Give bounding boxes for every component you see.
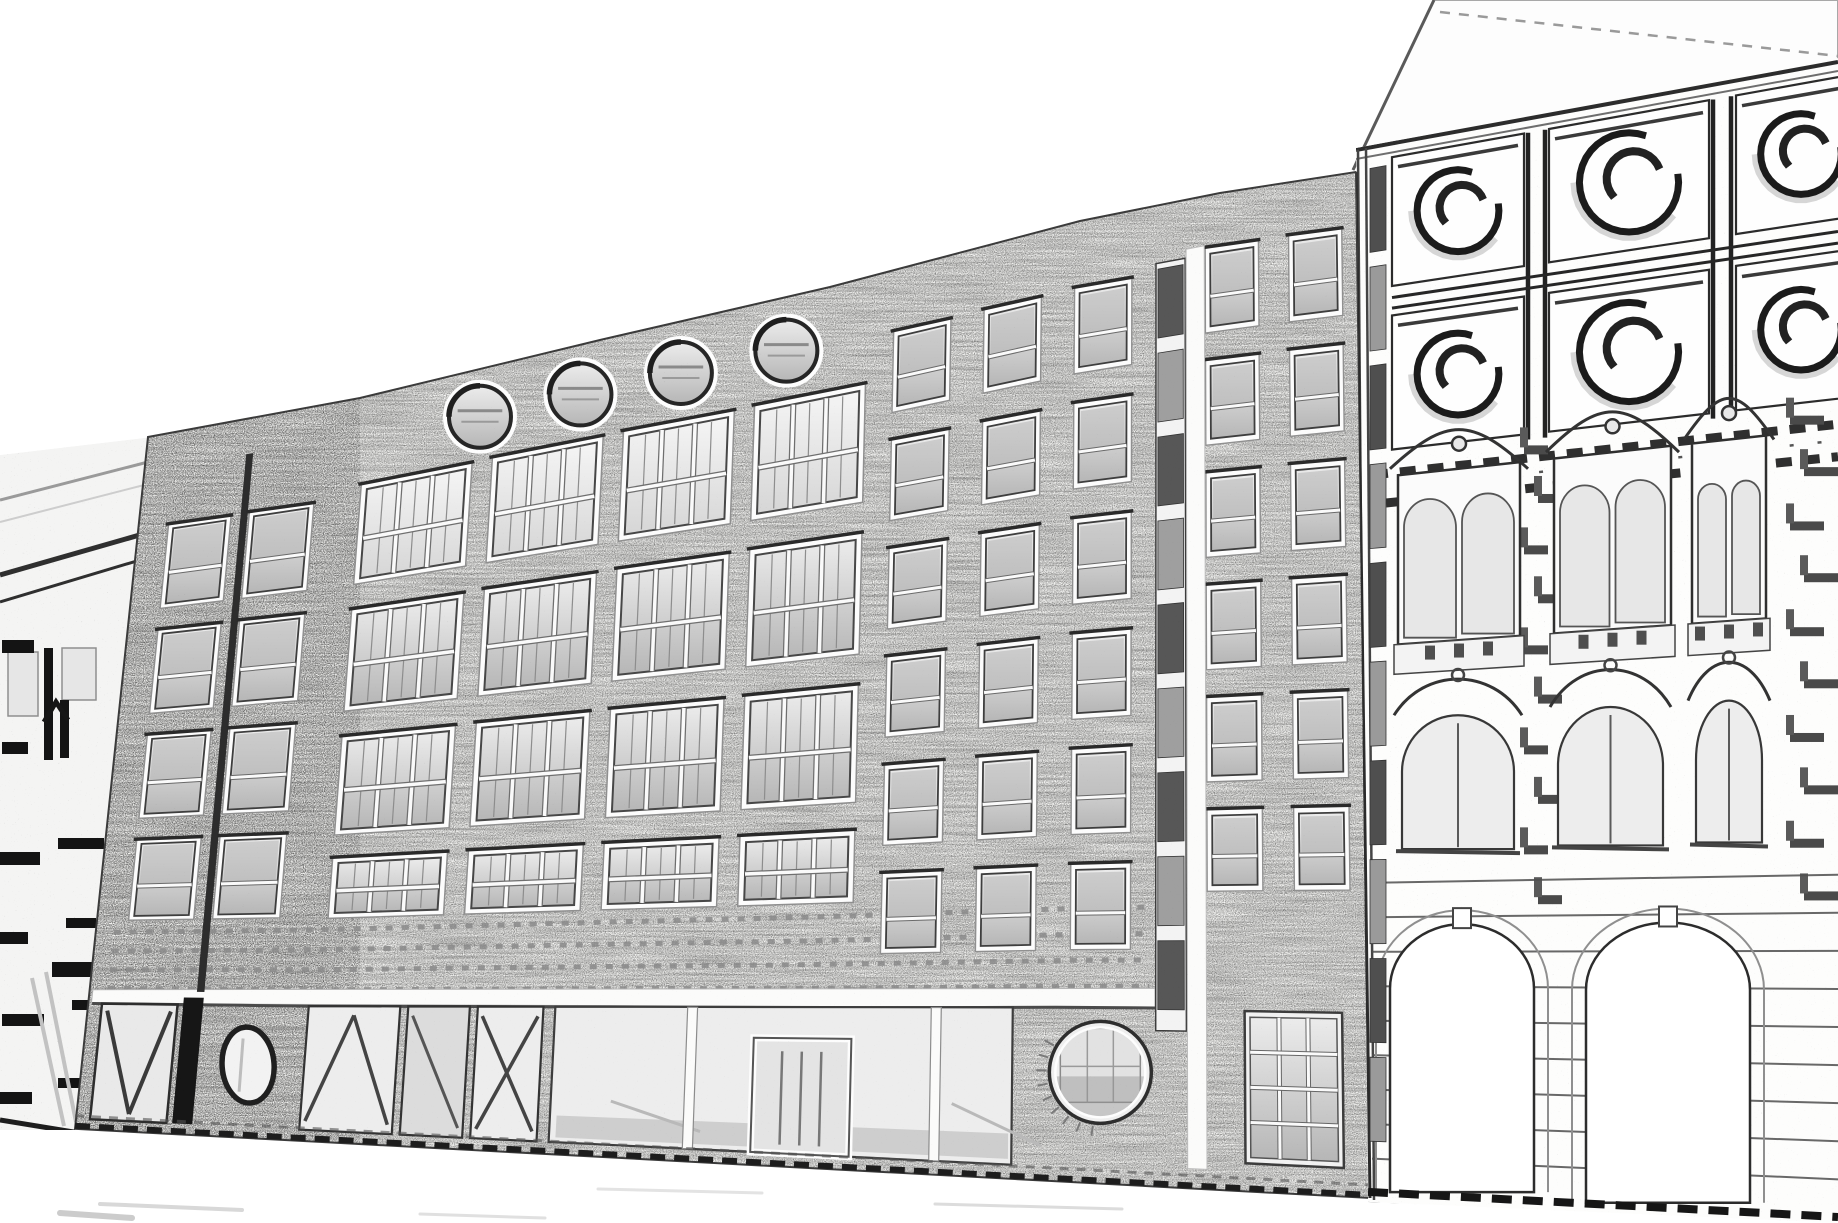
left-building-mark (2, 1014, 44, 1026)
aedicule-light (1732, 481, 1760, 615)
sill-bracket (1425, 646, 1435, 660)
sill-bracket (1637, 631, 1647, 645)
circle-ornament-panel (1549, 270, 1709, 432)
left-building-window (8, 652, 38, 716)
rusticated-block (1804, 573, 1838, 582)
rusticated-block-vertical (1534, 677, 1542, 697)
ornate-edge-strip-pane (1370, 1057, 1386, 1142)
rusticated-block-vertical (1800, 661, 1808, 681)
rusticated-block-vertical (1800, 449, 1808, 469)
sill-bracket (1753, 622, 1763, 636)
left-building-mark (44, 648, 53, 760)
rusticated-block (1790, 627, 1824, 636)
rusticated-block-vertical (1786, 398, 1794, 418)
rusticated-block (1790, 521, 1824, 530)
aedicule-light (1462, 493, 1514, 633)
rusticated-block (1790, 733, 1824, 742)
rusticated-block-vertical (1534, 777, 1542, 797)
sill-bracket (1608, 633, 1618, 647)
ornate-edge-strip-pane (1370, 166, 1386, 253)
rusticated-block (1804, 891, 1838, 900)
rusticated-block-vertical (1800, 767, 1808, 787)
ground (60, 1189, 1122, 1218)
aedicule-light (1698, 484, 1726, 617)
rusticated-block-vertical (1800, 555, 1808, 575)
left-building-mark (66, 918, 96, 928)
left-building-mark (2, 742, 28, 754)
arched-sill (1690, 845, 1768, 847)
left-building-mark (58, 838, 104, 849)
left-building-window (62, 648, 96, 700)
rusticated-block (1804, 785, 1838, 794)
circle-ornament-panel (1549, 100, 1709, 262)
arched-sill (1552, 847, 1669, 849)
rusticated-block-vertical (1534, 576, 1542, 596)
rusticated-block-vertical (1786, 715, 1794, 735)
rusticated-block-vertical (1534, 476, 1542, 496)
left-building-mark (0, 932, 28, 944)
aedicule-light (1560, 485, 1610, 626)
pavement-mark (100, 1204, 242, 1210)
unifying-grain (60, 140, 1380, 1220)
rusticated-block (1790, 416, 1824, 425)
rusticated-block (1804, 679, 1838, 688)
rusticated-block-vertical (1520, 827, 1528, 847)
left-building-mark (0, 1092, 32, 1104)
rusticated-block (1804, 467, 1838, 476)
rusticated-block (1790, 839, 1824, 848)
sketch-stage (0, 0, 1838, 1223)
aedicule-light (1404, 499, 1456, 638)
ornate-edge-strip-pane (1370, 760, 1386, 845)
rusticated-block-vertical (1786, 609, 1794, 629)
sill-bracket (1454, 644, 1464, 658)
arch-entrance (1572, 906, 1764, 1202)
pavement-mark (935, 1204, 1122, 1209)
rusticated-block-vertical (1520, 727, 1528, 747)
sill-bracket (1695, 627, 1705, 641)
left-building-mark (2, 640, 34, 653)
ornate-wall-group (1356, 50, 1838, 1223)
sill-bracket (1724, 625, 1734, 639)
arch-keystone (1453, 908, 1471, 928)
ornate-edge-strip-pane (1370, 364, 1386, 450)
arch-opening (1390, 924, 1534, 1192)
aedicule-crest (1606, 419, 1620, 433)
rusticated-block-vertical (1786, 503, 1794, 523)
ornate-edge-strip-pane (1370, 463, 1386, 549)
circle-ornament-panel (1392, 297, 1524, 450)
architectural-street-sketch (0, 0, 1838, 1223)
rusticated-block-vertical (1800, 873, 1808, 893)
aedicule-crest (1722, 406, 1736, 420)
aedicule-light (1616, 480, 1666, 623)
ornate-edge-strip-pane (1370, 661, 1386, 746)
circle-ornament-panel (1392, 134, 1524, 287)
aedicule-crest (1452, 437, 1466, 451)
sill-bracket (1483, 641, 1493, 655)
left-building-mark (0, 852, 40, 865)
pavement-mark (420, 1214, 545, 1218)
ornate-edge-strip-pane (1370, 265, 1386, 351)
ornate-edge-strip-pane (1370, 562, 1386, 647)
circle-ornament-panel (1736, 72, 1838, 234)
circle-ornament-panel (1736, 247, 1838, 410)
rusticated-block-vertical (1786, 821, 1794, 841)
ornate-building (1353, 0, 1838, 1223)
panel-frame (1392, 297, 1524, 450)
ornate-edge-strip-pane (1370, 859, 1386, 943)
sill-bracket (1579, 635, 1589, 649)
pavement-mark (60, 1213, 132, 1218)
ornate-edge-strip-pane (1370, 959, 1386, 1043)
arch-opening (1586, 922, 1750, 1202)
rusticated-block-vertical (1520, 427, 1528, 447)
arched-sill (1396, 851, 1520, 853)
arch-keystone (1659, 906, 1677, 926)
pavement-mark (598, 1189, 762, 1193)
